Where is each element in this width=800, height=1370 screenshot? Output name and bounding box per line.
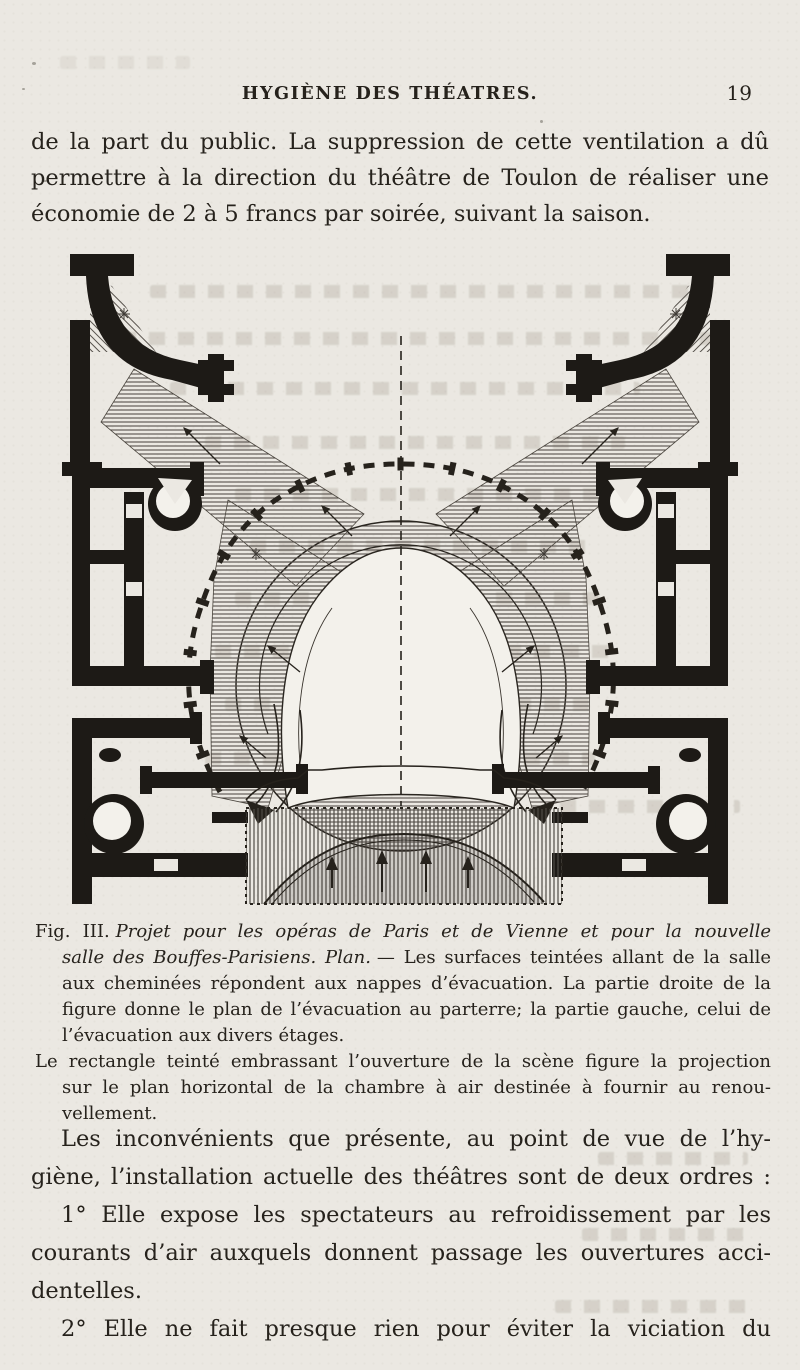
running-head-title: HYGIÈNE DES THÉATRES. <box>0 84 780 104</box>
caption-line: aux cheminées répondent aux nappes d’éva… <box>35 971 771 997</box>
caption-line: sur le plan horizontal de la chambre à a… <box>35 1075 771 1101</box>
bleedthrough-smudge <box>60 56 190 69</box>
caption-line: Le rectangle teinté embrassant l’ouvertu… <box>35 1049 771 1075</box>
caption-fig-label: Fig. III. <box>35 921 110 942</box>
theatre-plan-engraving <box>60 252 740 912</box>
wall-complex-mid-left <box>72 462 214 694</box>
caption-line: Fig. III.Projet pour les opéras de Paris… <box>35 919 771 945</box>
text-line: courants d’air auxquels donnent passage … <box>31 1234 771 1272</box>
text-line: de la part du public. La suppression de … <box>31 124 769 160</box>
caption-line: figure donne le plan de l’évacuation au … <box>35 997 771 1023</box>
text-line: giène, l’installation actuelle des théât… <box>31 1158 771 1196</box>
text-line: économie de 2 à 5 francs par soirée, sui… <box>31 196 769 232</box>
figure-theatre-plan <box>60 252 740 912</box>
text-line: Les inconvénients que présente, au point… <box>31 1120 771 1158</box>
caption-title: salle des Bouffes-Parisiens. Plan. <box>62 947 371 968</box>
intro-paragraph: de la part du public. La suppression de … <box>31 124 769 232</box>
caption-line: salle des Bouffes-Parisiens. Plan.— Les … <box>35 945 771 971</box>
caption-title: Projet pour les opéras de Paris et de Vi… <box>116 921 771 942</box>
paper-speck <box>32 62 36 65</box>
stage-air-chamber <box>246 808 562 904</box>
text-line: 2° Elle ne fait presque rien pour éviter… <box>31 1310 771 1348</box>
figure-caption: Fig. III.Projet pour les opéras de Paris… <box>35 919 771 1127</box>
page-number: 19 <box>727 81 752 105</box>
text-line: 1° Elle expose les spectateurs au refroi… <box>31 1196 771 1234</box>
body-paragraphs: Les inconvénients que présente, au point… <box>31 1120 771 1348</box>
caption-line: l’évacuation aux divers étages. <box>35 1023 771 1049</box>
book-page: HYGIÈNE DES THÉATRES. 19 de la part du p… <box>0 0 800 1370</box>
paper-speck <box>540 120 543 123</box>
text-line: permettre à la direction du théâtre de T… <box>31 160 769 196</box>
wall-complex-mid-right <box>586 462 728 694</box>
text-line: dentelles. <box>31 1272 771 1310</box>
